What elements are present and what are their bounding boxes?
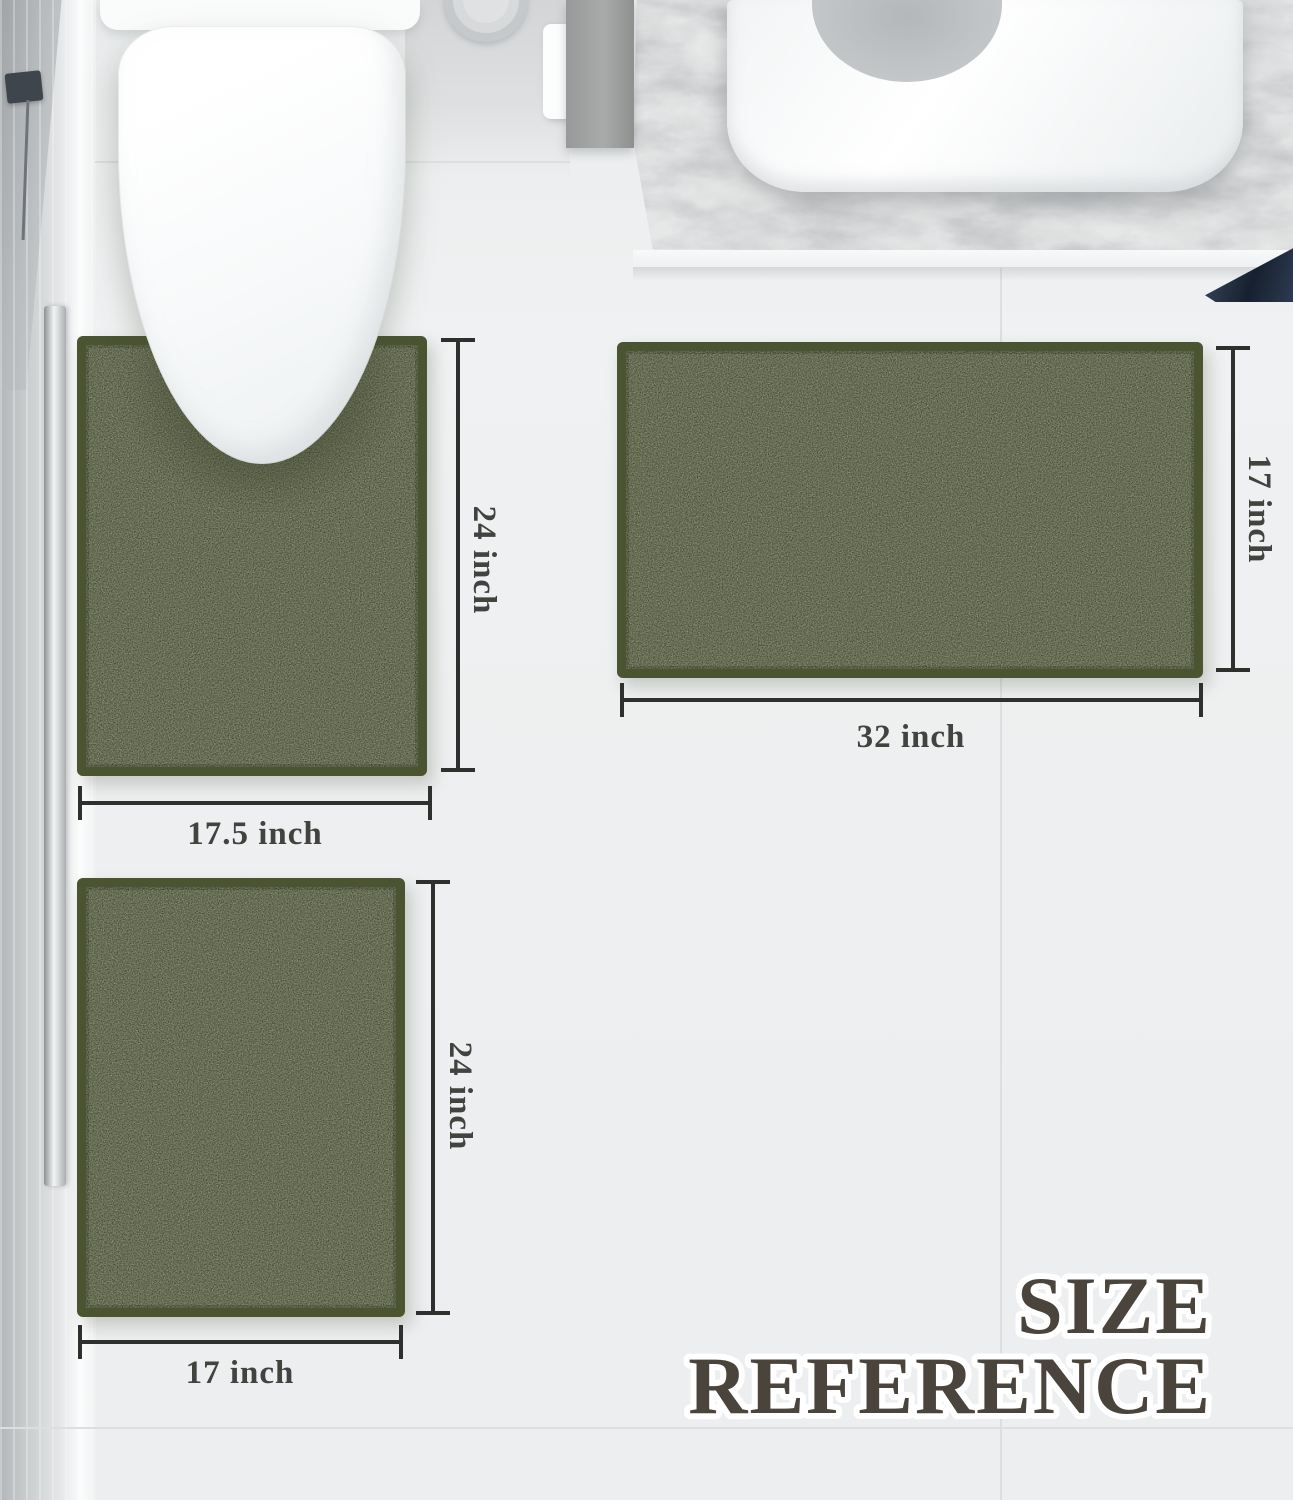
small-mat-height-label: 24 inch xyxy=(439,966,481,1226)
size-reference-scene: 24 inch 17.5 inch 17 inch 32 inch 24 inc… xyxy=(0,0,1293,1500)
glass-bracket xyxy=(5,70,44,104)
contour-mat-width-label: 17.5 inch xyxy=(105,813,405,855)
large-mat-height-dimension-line xyxy=(1231,346,1235,672)
large-mat-height-label: 17 inch xyxy=(1238,379,1280,639)
small-bath-mat xyxy=(77,878,405,1317)
contour-mat-height-label: 24 inch xyxy=(463,430,505,690)
counter-floor-shadow xyxy=(633,267,1293,281)
title-line-2: REFERENCE xyxy=(688,1340,1212,1431)
wall-slab xyxy=(566,0,634,148)
shower-glass-rail xyxy=(44,306,66,1186)
size-reference-title: SIZE REFERENCE xyxy=(560,1246,1220,1436)
small-mat-height-dimension-line xyxy=(431,880,435,1315)
counter-front-edge xyxy=(633,250,1293,267)
large-bath-mat xyxy=(617,342,1203,678)
large-mat-width-dimension-line xyxy=(620,698,1203,702)
contour-mat-width-dimension-line xyxy=(78,801,432,805)
small-mat-width-label: 17 inch xyxy=(90,1352,390,1394)
title-line-1: SIZE xyxy=(1017,1260,1212,1351)
contour-mat-height-dimension-line xyxy=(456,338,460,772)
small-mat-width-dimension-line xyxy=(78,1340,403,1344)
large-mat-width-label: 32 inch xyxy=(761,716,1061,758)
